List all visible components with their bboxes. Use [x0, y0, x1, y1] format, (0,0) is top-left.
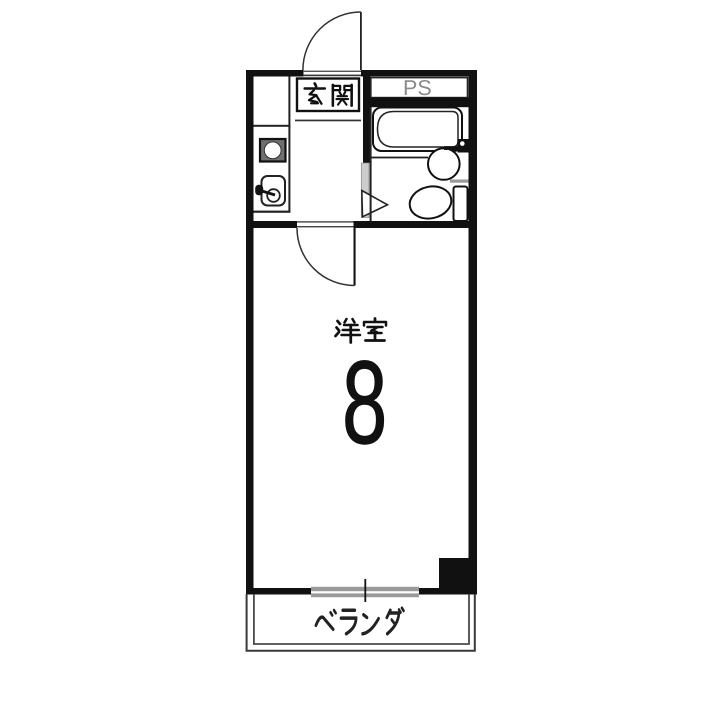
svg-text:PS: PS [403, 76, 432, 100]
svg-text:8: 8 [342, 337, 387, 469]
